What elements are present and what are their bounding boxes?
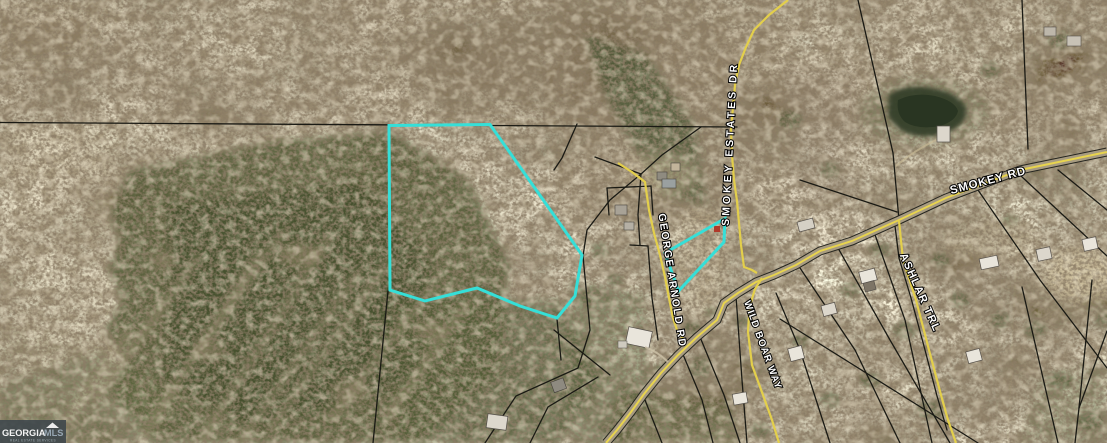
svg-text:REAL ESTATE SERVICES: REAL ESTATE SERVICES	[10, 439, 56, 443]
svg-text:MLS: MLS	[44, 428, 63, 438]
svg-text:GEORGIA: GEORGIA	[2, 428, 46, 438]
